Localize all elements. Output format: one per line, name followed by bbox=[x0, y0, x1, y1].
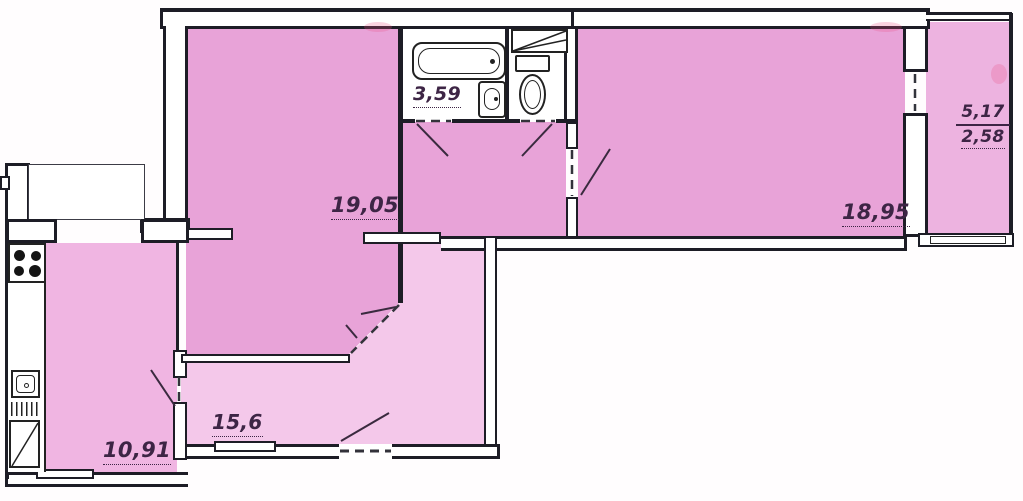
balcony-area-label: 5,17 2,58 bbox=[956, 104, 1010, 149]
kitchen-sink-icon bbox=[11, 370, 40, 398]
burner bbox=[14, 250, 25, 261]
burner bbox=[14, 266, 24, 276]
washbasin-icon bbox=[478, 81, 506, 118]
wall bbox=[452, 119, 508, 123]
bathtub-icon bbox=[412, 42, 506, 80]
hallway-floor-upper bbox=[402, 122, 566, 238]
living-room-area-label: 19,05 bbox=[331, 195, 399, 216]
wall bbox=[566, 197, 578, 238]
burner bbox=[29, 265, 41, 277]
wall bbox=[903, 26, 928, 72]
wall bbox=[183, 228, 233, 240]
wall bbox=[566, 122, 578, 149]
living-room-floor bbox=[186, 29, 400, 355]
bathtub-inner bbox=[418, 48, 500, 74]
hallway-area-label: 15,6 bbox=[212, 412, 263, 432]
wall bbox=[176, 243, 179, 353]
bedroom-area-label: 18,95 bbox=[842, 202, 910, 223]
wall bbox=[508, 119, 520, 123]
wall-step bbox=[214, 441, 276, 452]
wall bbox=[141, 219, 189, 243]
wall bbox=[484, 236, 497, 458]
wall bbox=[181, 354, 350, 363]
wall bbox=[398, 26, 403, 303]
cabinet-icon bbox=[9, 420, 40, 468]
balcony-window bbox=[930, 236, 1006, 244]
wall bbox=[402, 119, 415, 123]
wall bbox=[5, 163, 30, 222]
wall bbox=[5, 472, 188, 487]
wall bbox=[163, 26, 188, 220]
loggia-outline bbox=[28, 164, 145, 220]
wall bbox=[0, 176, 10, 190]
toilet-bowl-inner bbox=[524, 80, 541, 109]
kitchen-area-label: 10,91 bbox=[103, 440, 171, 461]
stove-icon bbox=[8, 243, 46, 283]
wall bbox=[6, 219, 57, 243]
bathtub-drain bbox=[490, 59, 495, 64]
balcony-area-reduced: 2,58 bbox=[961, 129, 1004, 149]
wall bbox=[926, 12, 1012, 21]
toilet-bowl bbox=[519, 74, 546, 115]
toilet-icon bbox=[515, 55, 550, 72]
hallway-floor-leg bbox=[402, 236, 484, 362]
burner bbox=[31, 251, 41, 261]
wall bbox=[441, 236, 907, 251]
kitchen-sink-drain bbox=[24, 383, 29, 388]
floor-plan: 3,59 19,05 18,95 5,17 2,58 10,91 15,6 bbox=[0, 0, 1023, 501]
wall bbox=[173, 402, 187, 460]
drainboard-icon bbox=[11, 402, 38, 416]
wall bbox=[160, 8, 930, 29]
bathroom-area-label: 3,59 bbox=[413, 85, 461, 104]
wall bbox=[363, 232, 441, 244]
washbasin-tap bbox=[494, 97, 498, 101]
balcony-area-total: 5,17 bbox=[956, 104, 1010, 126]
entry-opening bbox=[339, 444, 392, 460]
vent-shaft-icon bbox=[511, 29, 568, 53]
